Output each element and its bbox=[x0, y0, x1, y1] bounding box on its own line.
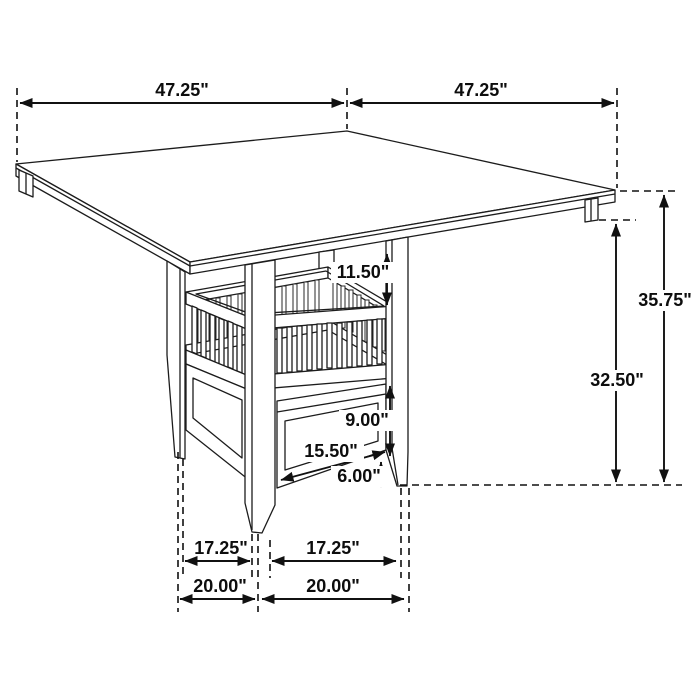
dimension-diagram: 47.25" 47.25" 35.75" 32.50" 11.50" 9.00"… bbox=[0, 0, 700, 700]
leg-left bbox=[167, 261, 185, 459]
table-line-drawing: 47.25" 47.25" 35.75" 32.50" 11.50" 9.00"… bbox=[0, 0, 700, 700]
dim-label-foot-clearance: 6.00" bbox=[337, 466, 381, 486]
dim-label-top-right: 47.25" bbox=[454, 80, 508, 100]
dim-label-top-left: 47.25" bbox=[155, 80, 209, 100]
dim-label-storage-height: 9.00" bbox=[345, 410, 389, 430]
dim-label-legs-inner-right: 17.25" bbox=[306, 538, 360, 558]
dim-label-legs-outer-left: 20.00" bbox=[193, 576, 247, 596]
dim-label-clearance-height: 32.50" bbox=[590, 370, 644, 390]
dim-label-top-to-shelf: 11.50" bbox=[337, 262, 390, 282]
dim-label-legs-inner-left: 17.25" bbox=[194, 538, 248, 558]
dim-label-overall-height: 35.75" bbox=[638, 290, 692, 310]
leg-front bbox=[245, 260, 275, 533]
tabletop bbox=[16, 131, 615, 274]
dim-label-storage-width: 15.50" bbox=[304, 441, 358, 461]
dim-label-legs-outer-right: 20.00" bbox=[306, 576, 360, 596]
